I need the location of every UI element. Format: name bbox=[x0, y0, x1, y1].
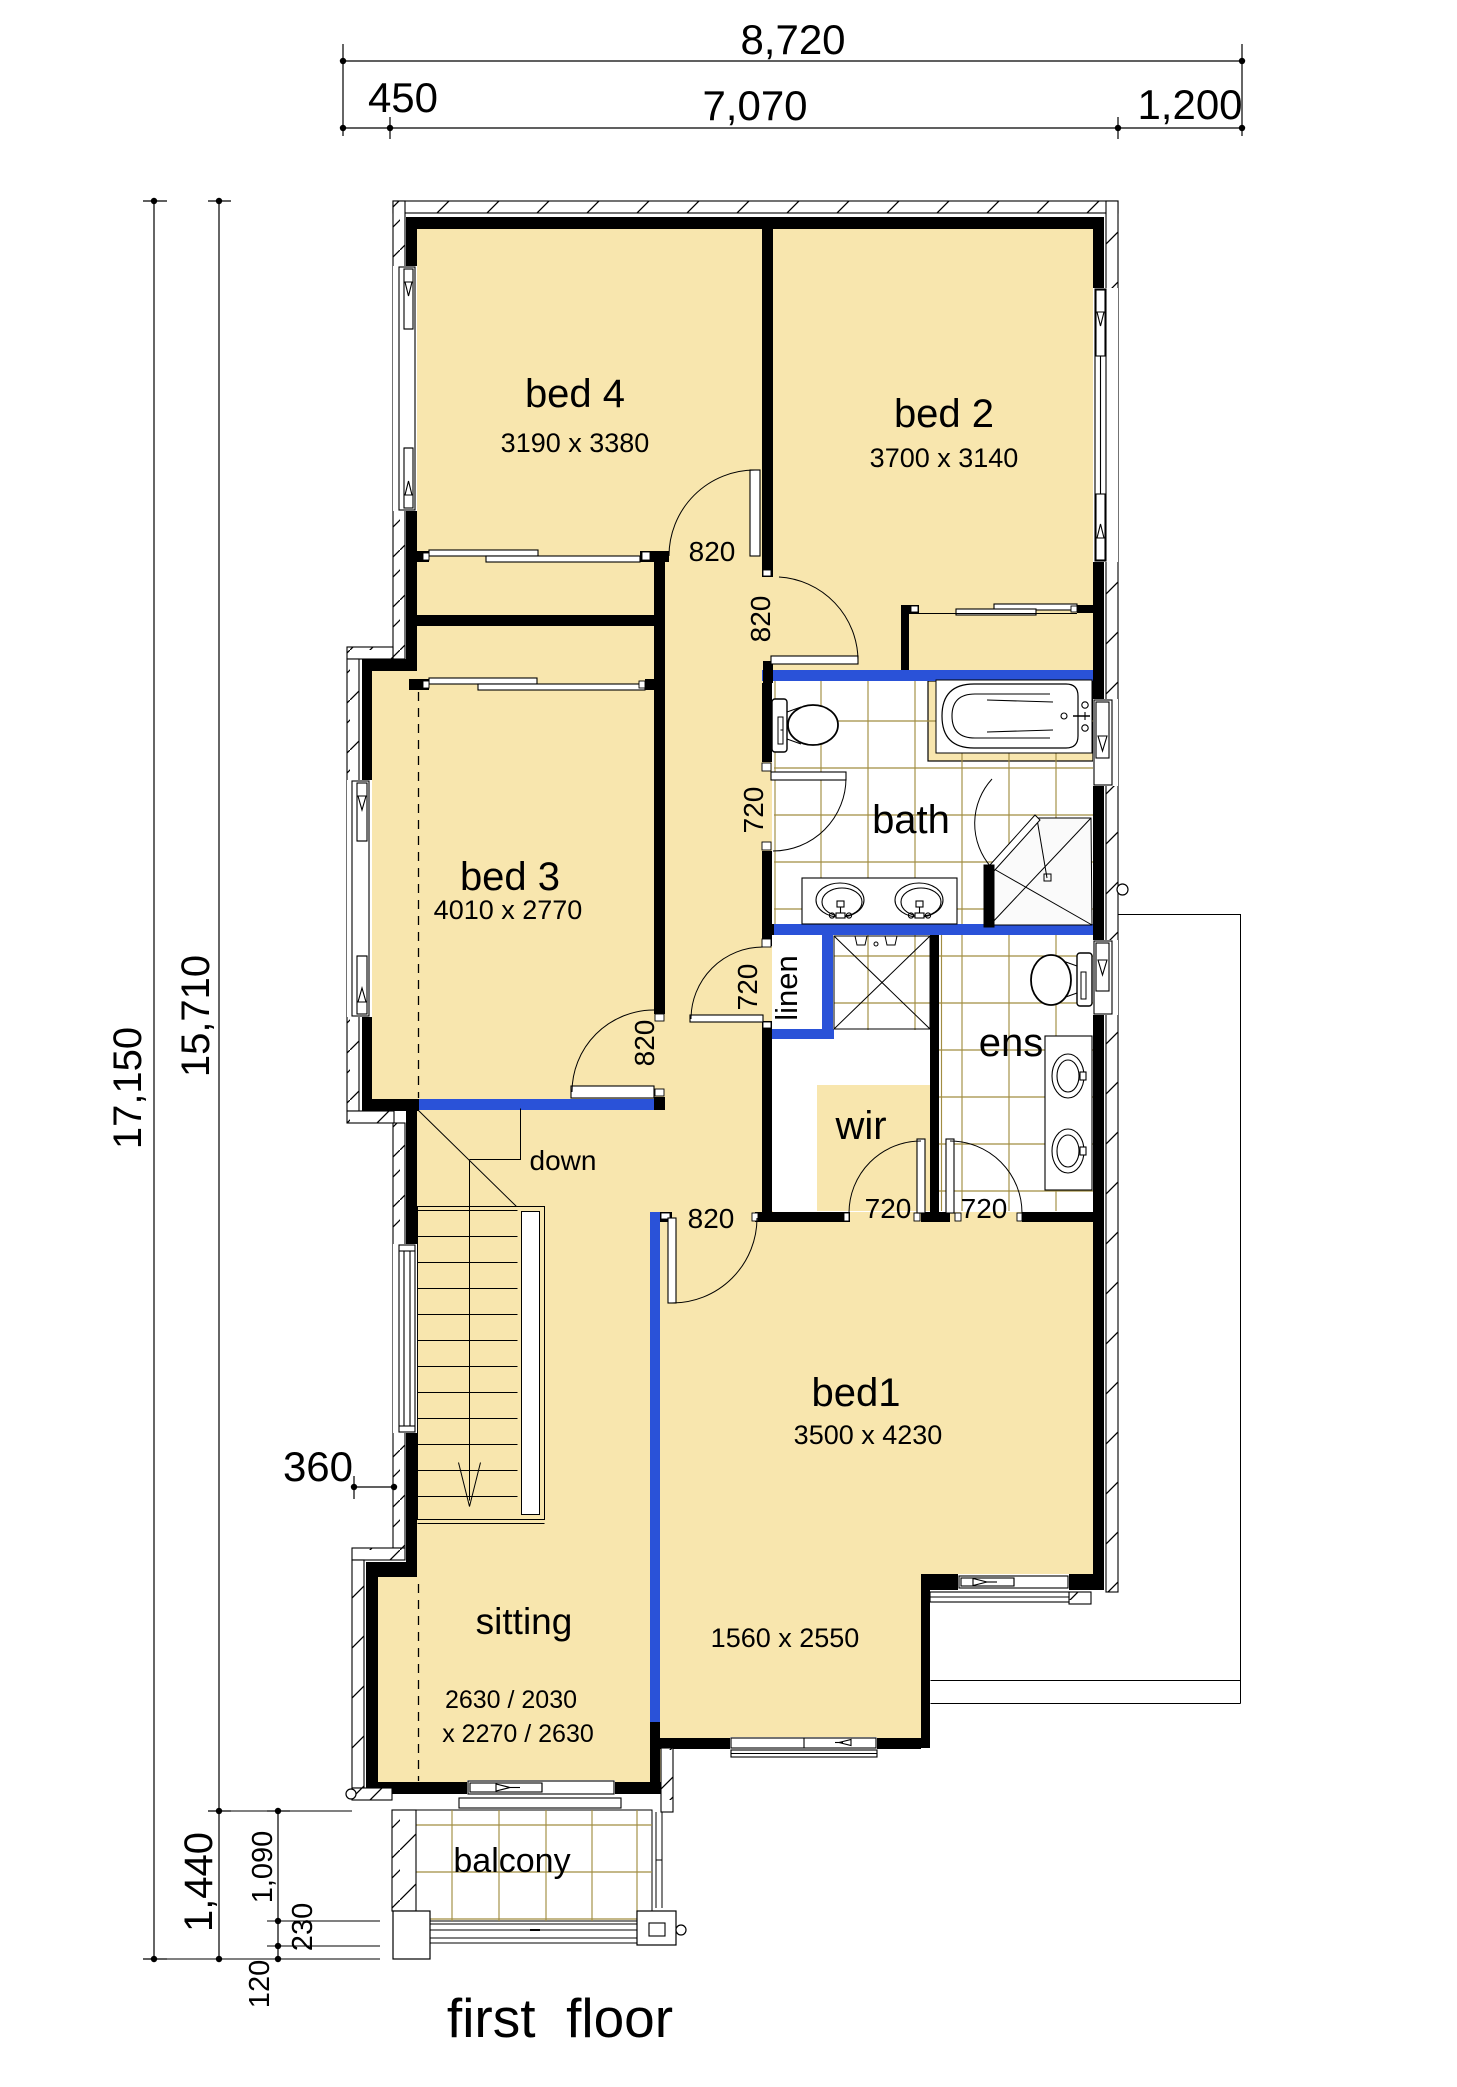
svg-text:820: 820 bbox=[689, 536, 736, 567]
svg-text:820: 820 bbox=[688, 1203, 735, 1234]
svg-text:720: 720 bbox=[738, 787, 769, 834]
svg-text:3500 x 4230: 3500 x 4230 bbox=[794, 1420, 943, 1450]
svg-text:bed 2: bed 2 bbox=[894, 392, 994, 436]
svg-text:bath: bath bbox=[872, 798, 950, 842]
svg-text:1,090: 1,090 bbox=[247, 1831, 279, 1904]
svg-text:450: 450 bbox=[368, 74, 438, 121]
svg-text:2630 / 2030: 2630 / 2030 bbox=[445, 1686, 577, 1714]
svg-text:120: 120 bbox=[244, 1960, 276, 2008]
svg-text:first floor: first floor bbox=[447, 1987, 673, 2049]
svg-text:820: 820 bbox=[745, 596, 776, 643]
svg-text:linen: linen bbox=[769, 955, 804, 1021]
svg-text:bed 4: bed 4 bbox=[525, 372, 625, 416]
svg-text:15,710: 15,710 bbox=[174, 955, 218, 1077]
svg-text:1,200: 1,200 bbox=[1137, 81, 1242, 128]
svg-text:wir: wir bbox=[834, 1104, 886, 1148]
svg-text:17,150: 17,150 bbox=[106, 1027, 150, 1149]
svg-text:balcony: balcony bbox=[453, 1842, 570, 1880]
svg-text:4010 x 2770: 4010 x 2770 bbox=[434, 895, 583, 925]
svg-text:8,720: 8,720 bbox=[740, 16, 845, 63]
svg-text:bed1: bed1 bbox=[812, 1371, 901, 1415]
svg-text:1,440: 1,440 bbox=[177, 1832, 221, 1932]
svg-text:720: 720 bbox=[961, 1193, 1008, 1224]
svg-text:sitting: sitting bbox=[476, 1601, 573, 1642]
svg-text:down: down bbox=[530, 1145, 597, 1176]
svg-text:x 2270 / 2630: x 2270 / 2630 bbox=[442, 1720, 594, 1748]
svg-text:3700 x 3140: 3700 x 3140 bbox=[870, 443, 1019, 473]
svg-text:3190 x 3380: 3190 x 3380 bbox=[501, 428, 650, 458]
svg-text:720: 720 bbox=[732, 964, 763, 1011]
svg-text:7,070: 7,070 bbox=[702, 82, 807, 129]
svg-text:1560 x 2550: 1560 x 2550 bbox=[711, 1623, 860, 1653]
svg-text:ens: ens bbox=[979, 1021, 1044, 1065]
svg-text:bed 3: bed 3 bbox=[460, 855, 560, 899]
svg-text:820: 820 bbox=[629, 1020, 660, 1067]
svg-text:230: 230 bbox=[287, 1903, 319, 1951]
svg-text:360: 360 bbox=[283, 1443, 353, 1490]
svg-text:720: 720 bbox=[865, 1193, 912, 1224]
